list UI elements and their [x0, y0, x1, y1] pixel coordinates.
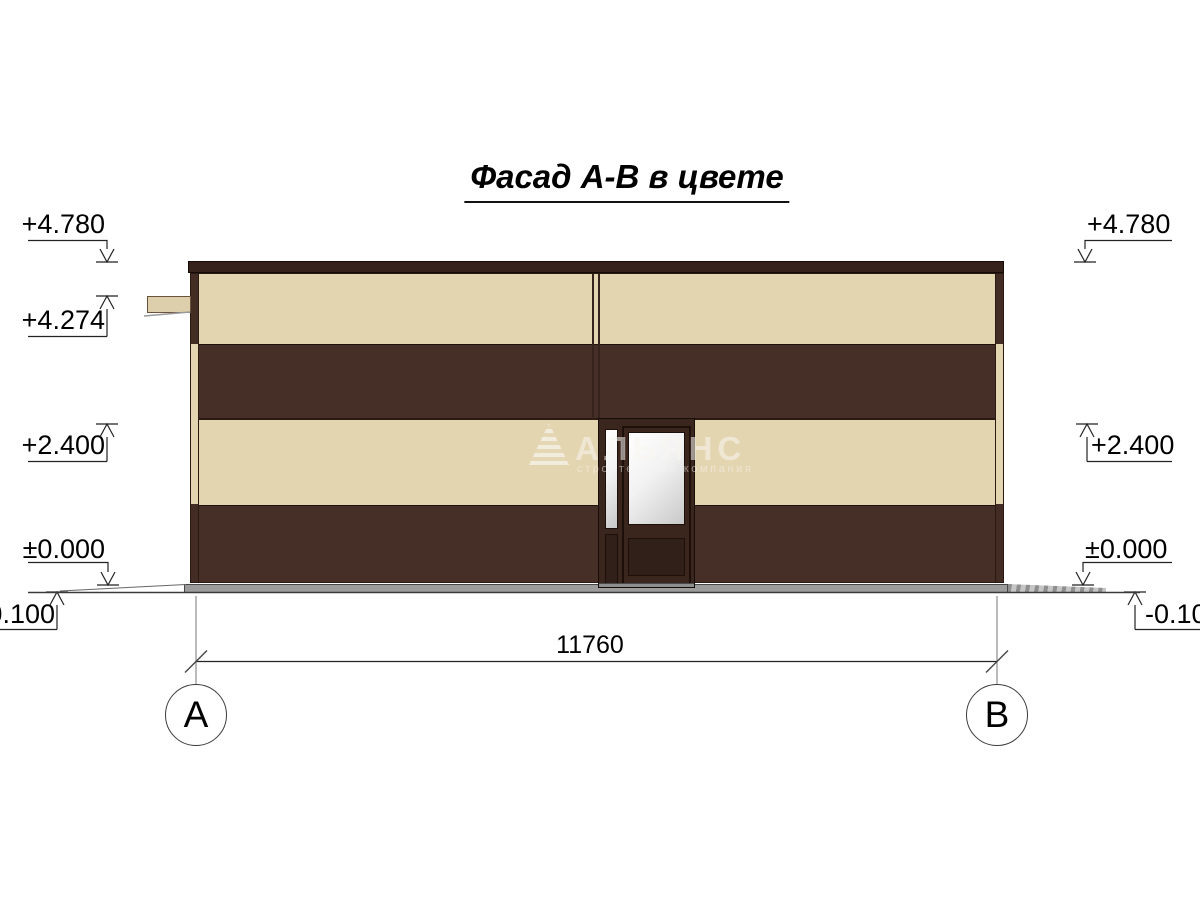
corner-segment — [996, 504, 1003, 582]
axis-bubble-b: В — [966, 684, 1028, 746]
elevation-label-right-0000: ±0.000 — [1085, 535, 1167, 563]
elevation-label-right-m0100: -0.100 — [1145, 600, 1200, 628]
door-sidelight-glass — [605, 429, 618, 529]
corner-pilaster-right — [995, 274, 1003, 582]
entrance-door — [598, 418, 695, 588]
elevation-leader-arrow — [28, 563, 119, 586]
corner-segment — [191, 504, 198, 582]
elevation-label-right-4780: +4.780 — [1087, 210, 1170, 238]
elevation-label-left-0000: ±0.000 — [19, 535, 105, 563]
axis-bubble-a: А — [165, 684, 227, 746]
corner-segment — [191, 274, 198, 344]
axis-label-b: В — [985, 694, 1010, 735]
elevation-label-left-4274: +4.274 — [19, 306, 105, 334]
ground-ramp-hatch — [1008, 584, 1106, 593]
wall-band-beige-lower — [191, 420, 1003, 505]
elevation-label-left-4780: +4.780 — [19, 210, 105, 238]
ground-slope-line — [60, 585, 186, 592]
door-bottom-panel — [628, 538, 685, 576]
panel-joint-line — [592, 274, 600, 419]
door-threshold — [599, 583, 694, 587]
corner-segment — [996, 274, 1003, 344]
wall-band-brown-lower — [191, 505, 1003, 582]
facade-drawing: Фасад А-В в цвете — [0, 0, 1200, 900]
elevation-leader-arrow — [28, 241, 118, 263]
door-leaf — [622, 426, 691, 585]
overall-width-dimension: 11760 — [556, 631, 624, 660]
corner-segment — [191, 344, 198, 504]
facade-wall — [190, 273, 1004, 583]
elevation-label-right-2400: +2.400 — [1091, 431, 1174, 459]
axis-label-a: А — [184, 694, 209, 735]
corner-segment — [996, 344, 1003, 504]
door-glass — [628, 432, 685, 525]
elevation-leader-arrow — [1072, 563, 1172, 586]
roof-parapet — [188, 261, 1004, 273]
plinth-base — [184, 584, 1008, 593]
wall-outrigger-beam — [147, 296, 191, 313]
elevation-label-left-m0100: -0.100 — [0, 600, 55, 628]
corner-pilaster-left — [191, 274, 199, 582]
elevation-label-left-2400: +2.400 — [19, 431, 105, 459]
elevation-leader-arrow — [1074, 241, 1172, 263]
page-title: Фасад А-В в цвете — [464, 158, 789, 203]
door-sidelight-panel — [605, 534, 618, 586]
